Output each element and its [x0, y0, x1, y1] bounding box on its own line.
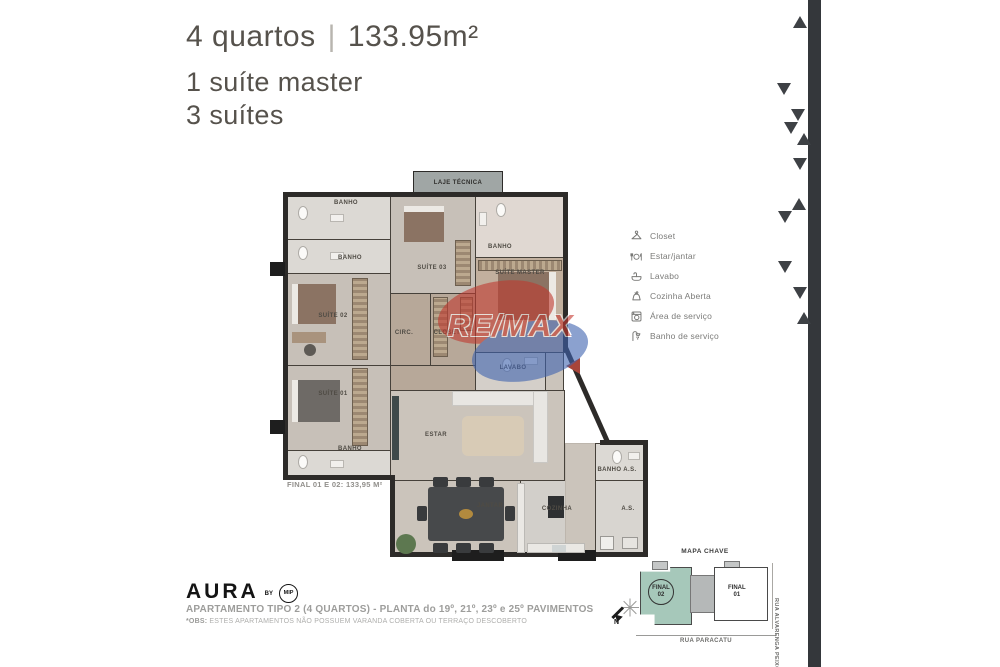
room-label: BANHO: [334, 200, 358, 206]
legend-item: Closet: [630, 229, 719, 243]
triangle-decoration: [797, 133, 811, 145]
triangle-decoration: [797, 312, 811, 324]
room-label: COZINHA: [542, 506, 572, 512]
brand-mip-logo: MIP: [279, 584, 298, 603]
room-passagem-cozinha: [565, 443, 596, 557]
wall: [390, 475, 395, 557]
map-unit-02-line2: 02: [652, 592, 670, 599]
room-label: SUÍTE 03: [417, 265, 446, 271]
room-label: BANHO: [338, 255, 362, 261]
footer-description: APARTAMENTO TIPO 2 (4 QUARTOS) - PLANTA …: [186, 604, 593, 615]
dining-chair: [479, 477, 494, 487]
triangle-decoration: [784, 122, 798, 134]
remax-watermark: RE/MAX: [423, 280, 598, 395]
wall: [283, 192, 288, 480]
map-roof-detail: [652, 561, 668, 570]
wardrobe-suite-02: [352, 278, 368, 360]
brand-by: BY: [265, 591, 273, 597]
map-unit-02-line1: FINAL: [652, 585, 670, 592]
legend-item: Banho de serviço: [630, 329, 719, 343]
dining-chair: [479, 543, 494, 553]
brochure-page: 4 quartos | 133.95m² 1 suíte master 3 su…: [0, 0, 1000, 667]
rug: [462, 416, 524, 456]
title-rooms: 4 quartos: [186, 20, 316, 54]
kitchen-sink: [552, 545, 566, 552]
toilet: [298, 246, 308, 260]
chair-suite-02: [304, 344, 316, 356]
legend-item: Cozinha Aberta: [630, 289, 719, 303]
page-subtitle: 1 suíte master 3 suítes: [186, 66, 363, 132]
subtitle-suites: 3 suítes: [186, 99, 363, 132]
bathroom-sink: [479, 212, 487, 226]
wall: [643, 440, 648, 557]
triangle-decoration: [793, 16, 807, 28]
tv-panel: [392, 396, 399, 460]
room-label: BANHO: [338, 446, 362, 452]
legend-item: Área de serviço: [630, 309, 719, 323]
room-label: ESTAR: [425, 432, 447, 438]
compass-north-label: N: [614, 619, 619, 626]
street-bottom-label: RUA PARACATU: [636, 638, 776, 644]
triangle-decoration: [793, 158, 807, 170]
wardrobe-suite-01: [352, 368, 368, 446]
map-key-title: MAPA CHAVE: [640, 548, 770, 555]
plant: [396, 534, 416, 554]
watermark-text: RE/MAX: [423, 308, 598, 344]
map-unit-02-label: FINAL 02: [652, 585, 670, 598]
street-right-label: RUA ALVARENGA PEIXOTO: [773, 598, 779, 667]
toilet: [496, 203, 506, 217]
compass: N: [614, 593, 646, 627]
legend-label: Área de serviço: [650, 311, 712, 321]
legend-label: Closet: [650, 231, 675, 241]
title-divider: |: [328, 20, 336, 54]
wall: [283, 192, 568, 197]
triangle-decoration: [791, 109, 805, 121]
footer-obs-text: ESTES APARTAMENTOS NÃO POSSUEM VARANDA C…: [207, 618, 527, 625]
map-unit-01-line1: FINAL: [728, 585, 746, 592]
legend-label: Lavabo: [650, 271, 679, 281]
room-label: CIRC.: [395, 330, 413, 336]
map-unit-02-badge: FINAL 02: [648, 579, 674, 605]
wall-stub: [270, 262, 285, 276]
room-label: SUÍTE MASTER: [495, 270, 544, 276]
room-label: SUÍTE 02: [318, 313, 347, 319]
room-label: BANHO: [488, 244, 512, 250]
room-label: LAJE TÉCNICA: [434, 180, 482, 186]
bathroom-sink: [330, 460, 344, 468]
room-label: A.S.: [621, 506, 634, 512]
triangle-decoration: [778, 211, 792, 223]
kitchen-counter: [517, 483, 525, 553]
dining-chair: [417, 506, 427, 521]
brand-aura: AURA: [186, 580, 259, 604]
wall-stub: [270, 420, 285, 434]
shower-icon: [630, 330, 643, 343]
bathroom-sink: [628, 452, 640, 460]
map-unit-01-label: FINAL 01: [728, 585, 746, 598]
right-accent-bar: [808, 0, 821, 667]
bathroom-sink: [330, 214, 344, 222]
dining-chair: [433, 543, 448, 553]
table-centerpiece: [459, 509, 473, 519]
plan-legend: Closet Estar/jantar Lavabo Cozinha Abert…: [630, 229, 719, 349]
bed-suite-03: [404, 206, 444, 242]
map-unit-01-line2: 01: [728, 592, 746, 599]
triangle-decoration: [793, 287, 807, 299]
plan-area-note: FINAL 01 E 02: 133,95 M²: [287, 480, 382, 489]
dining-chair: [456, 477, 471, 487]
toilet: [298, 455, 308, 469]
title-area: 133.95m²: [348, 20, 479, 54]
room-label: BANHO A.S.: [597, 467, 636, 473]
toilet: [612, 450, 622, 464]
legend-label: Estar/jantar: [650, 251, 696, 261]
legend-item: Estar/jantar: [630, 249, 719, 263]
dining-chair: [456, 543, 471, 553]
page-title: 4 quartos | 133.95m²: [186, 20, 479, 54]
toilet: [298, 206, 308, 220]
dining-chair: [433, 477, 448, 487]
dining-icon: [630, 250, 643, 263]
triangle-decoration: [778, 261, 792, 273]
subtitle-master: 1 suíte master: [186, 66, 363, 99]
desk-suite-02: [292, 332, 326, 343]
map-key: MAPA CHAVE FINAL 02 FINAL 01 RUA PARACAT…: [612, 545, 797, 655]
legend-label: Cozinha Aberta: [650, 291, 711, 301]
sofa-chaise: [533, 391, 548, 463]
room-label: JANTAR: [477, 503, 503, 509]
triangle-decoration: [792, 198, 806, 210]
legend-label: Banho de serviço: [650, 331, 719, 341]
sink-icon: [630, 270, 643, 283]
room-label: SUÍTE 01: [318, 391, 347, 397]
legend-item: Lavabo: [630, 269, 719, 283]
dining-chair: [505, 506, 515, 521]
footer-obs-label: *OBS:: [186, 618, 207, 625]
triangle-decoration: [777, 83, 791, 95]
map-core: [690, 575, 716, 613]
washer-icon: [630, 310, 643, 323]
hanger-icon: [630, 230, 643, 243]
kettle-icon: [630, 290, 643, 303]
brand-logo: AURA BY MIP: [186, 580, 298, 604]
footer-obs: *OBS: ESTES APARTAMENTOS NÃO POSSUEM VAR…: [186, 618, 527, 625]
bed-suite-01: [292, 380, 340, 422]
street-line-bottom: [636, 635, 776, 636]
